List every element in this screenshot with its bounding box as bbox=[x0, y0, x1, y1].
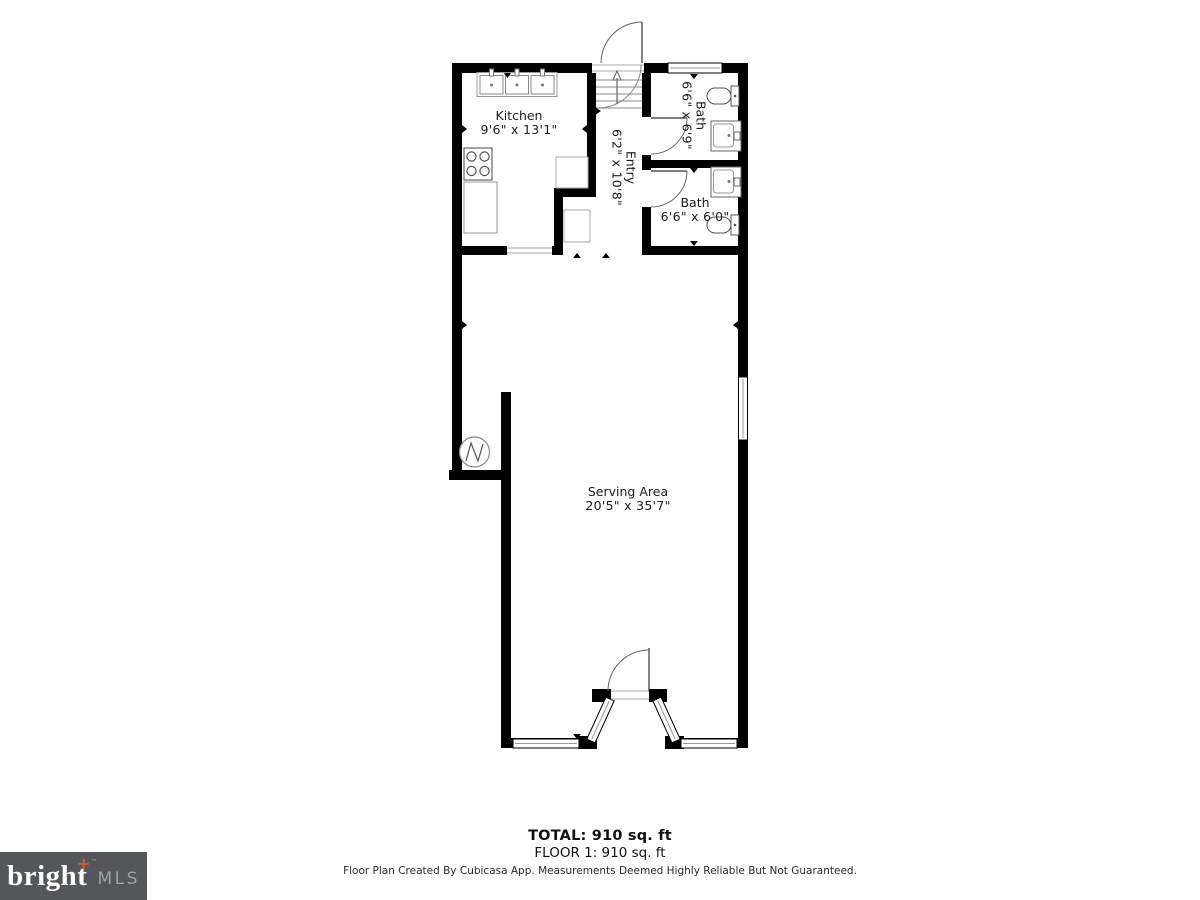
kitchen-label: Kitchen 9'6" x 13'1" bbox=[454, 109, 584, 136]
floorplan-page: Kitchen 9'6" x 13'1" Entry 6'2" x 10'8" … bbox=[0, 0, 1200, 900]
room-name: Serving Area bbox=[563, 485, 693, 499]
room-dims: 6'2" x 10'8" bbox=[611, 123, 625, 213]
room-name: Bath bbox=[694, 76, 708, 156]
bay-entry-door bbox=[608, 648, 649, 699]
bath1-label: Bath 6'6" x 6'9" bbox=[681, 76, 708, 156]
kitchen-counter bbox=[556, 157, 588, 188]
stove-icon bbox=[464, 148, 492, 180]
room-dims: 20'5" x 35'7" bbox=[563, 499, 693, 513]
logo-brand-wrap: bright + ™ bbox=[7, 860, 87, 893]
window-bottom-left bbox=[513, 739, 579, 748]
trademark-symbol: ™ bbox=[90, 858, 97, 866]
logo-brand-text: bright bbox=[7, 860, 87, 892]
bathroom-sink-icon-bath1 bbox=[711, 121, 741, 151]
room-name: Kitchen bbox=[454, 109, 584, 123]
serving-area-label: Serving Area 20'5" x 35'7" bbox=[563, 485, 693, 512]
room-dims: 9'6" x 13'1" bbox=[454, 123, 584, 137]
bath2-label: Bath 6'6" x 6'0" bbox=[630, 196, 760, 223]
plus-icon: + bbox=[77, 854, 90, 873]
entry-cabinet bbox=[564, 210, 590, 242]
floorplan-drawing bbox=[0, 0, 1200, 900]
brightmls-logo: bright + ™ MLS bbox=[0, 852, 147, 900]
kitchen-sink-icon bbox=[477, 69, 557, 97]
window-top-bath bbox=[668, 63, 722, 73]
bathroom-sink-icon-bath2 bbox=[711, 167, 741, 197]
floor-area-text: FLOOR 1: 910 sq. ft bbox=[0, 845, 1200, 861]
stairs-icon bbox=[596, 80, 642, 108]
room-name: Bath bbox=[630, 196, 760, 210]
logo-suffix-text: MLS bbox=[97, 863, 139, 889]
room-dims: 6'6" x 6'9" bbox=[681, 76, 695, 156]
front-door bbox=[592, 22, 644, 108]
toilet-icon-bath1 bbox=[707, 86, 739, 106]
window-right-wall bbox=[739, 377, 748, 440]
room-dims: 6'6" x 6'0" bbox=[630, 210, 760, 224]
water-heater-icon bbox=[460, 437, 490, 467]
total-area-text: TOTAL: 910 sq. ft bbox=[0, 828, 1200, 844]
walls bbox=[449, 63, 748, 749]
kitchen-opening-threshold bbox=[507, 248, 552, 253]
window-bottom-right bbox=[681, 739, 737, 748]
refrigerator-icon bbox=[464, 182, 497, 233]
window-bay-left-angled bbox=[587, 697, 614, 743]
disclaimer-text: Floor Plan Created By Cubicasa App. Meas… bbox=[0, 865, 1200, 877]
window-bay-right-angled bbox=[653, 697, 680, 743]
